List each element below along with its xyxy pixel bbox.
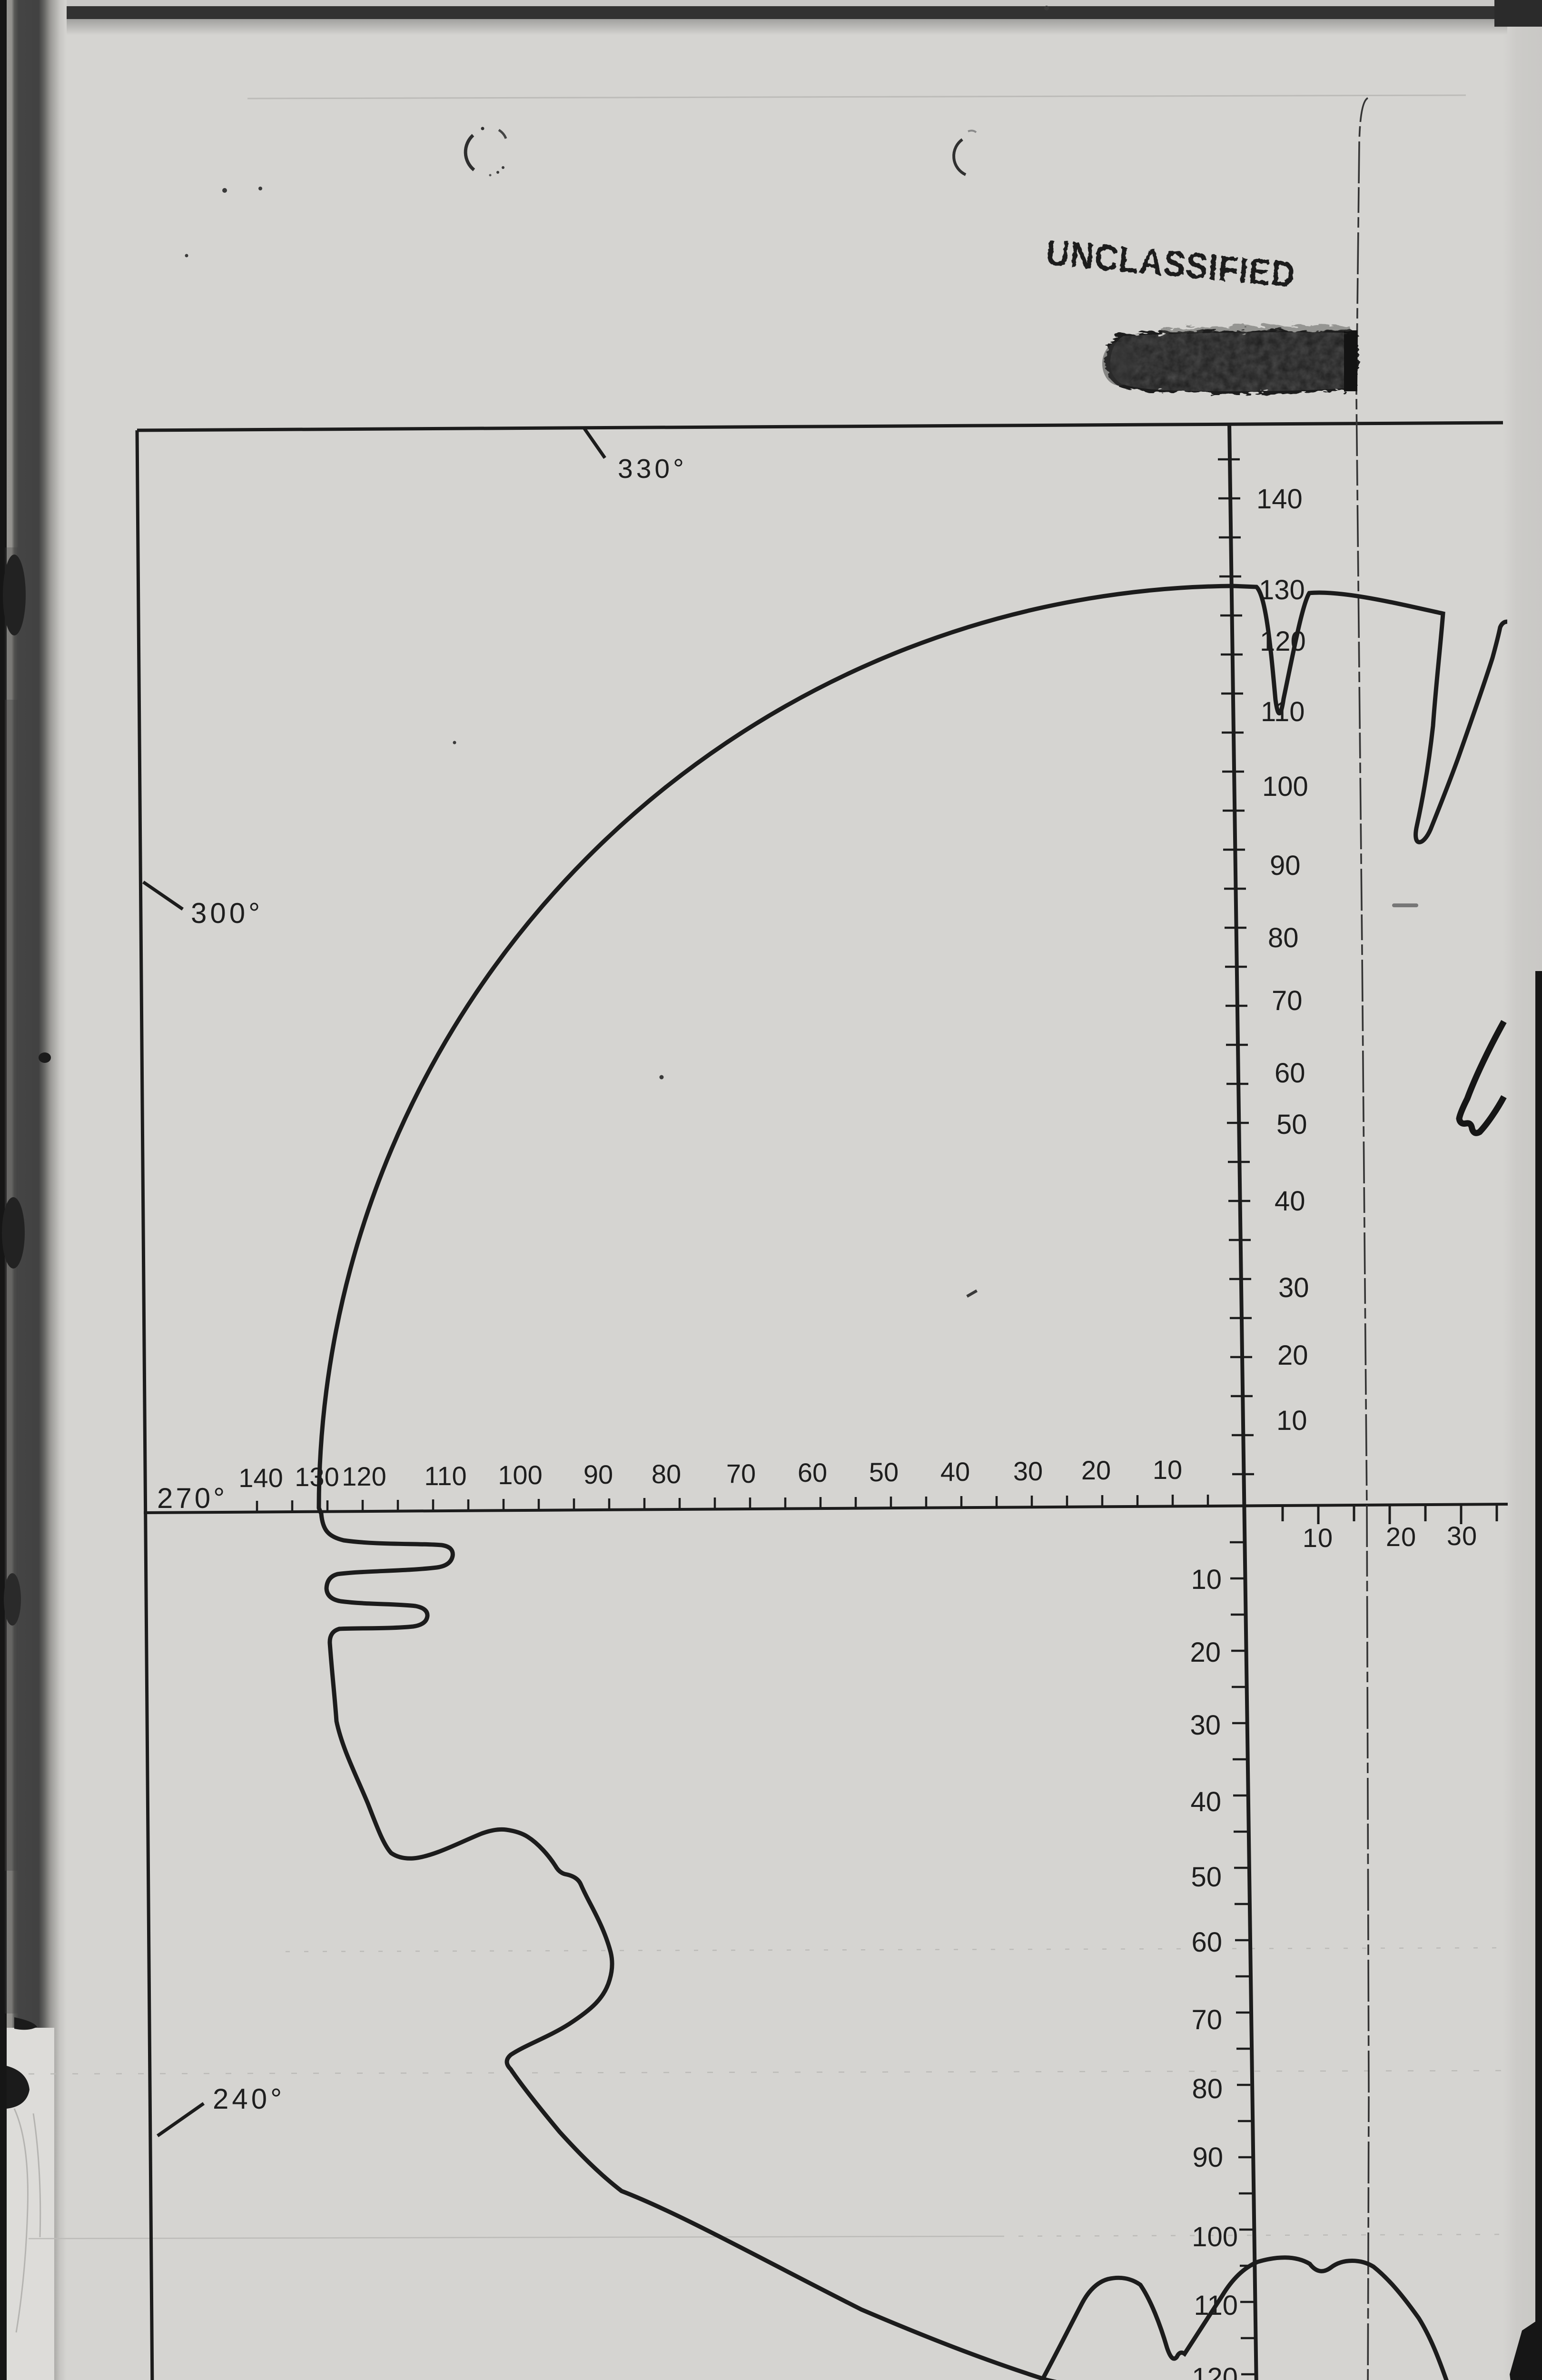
svg-text:80: 80: [1268, 922, 1299, 953]
svg-text:50: 50: [869, 1457, 899, 1487]
svg-text:50: 50: [1191, 1862, 1222, 1893]
svg-text:90: 90: [1270, 850, 1301, 881]
svg-text:120: 120: [342, 1461, 386, 1491]
svg-text:100: 100: [1192, 2221, 1238, 2252]
svg-text:30: 30: [1190, 1710, 1221, 1741]
svg-text:110: 110: [424, 1461, 466, 1491]
svg-text:120: 120: [1192, 2362, 1238, 2380]
svg-text:10: 10: [1153, 1455, 1182, 1485]
svg-text:100: 100: [1262, 771, 1308, 802]
svg-text:330°: 330°: [618, 454, 687, 484]
svg-text:20: 20: [1386, 1522, 1416, 1552]
svg-text:270°: 270°: [157, 1482, 227, 1514]
svg-text:140: 140: [1256, 484, 1303, 515]
svg-text:70: 70: [726, 1458, 756, 1488]
svg-text:30: 30: [1447, 1521, 1477, 1551]
svg-text:80: 80: [1192, 2073, 1223, 2104]
svg-text:100: 100: [498, 1460, 542, 1490]
svg-text:20: 20: [1081, 1455, 1111, 1485]
svg-text:20: 20: [1190, 1637, 1221, 1668]
svg-text:10: 10: [1303, 1523, 1333, 1553]
svg-text:140: 140: [238, 1463, 283, 1493]
svg-text:70: 70: [1272, 985, 1303, 1016]
svg-text:20: 20: [1277, 1340, 1308, 1371]
svg-text:60: 60: [1191, 1927, 1222, 1958]
svg-text:300°: 300°: [191, 897, 263, 929]
svg-text:40: 40: [1275, 1186, 1305, 1217]
svg-text:80: 80: [652, 1459, 681, 1489]
svg-text:30: 30: [1013, 1456, 1043, 1486]
svg-text:90: 90: [583, 1459, 613, 1489]
svg-text:70: 70: [1191, 2004, 1222, 2035]
svg-text:90: 90: [1192, 2142, 1223, 2173]
svg-text:10: 10: [1191, 1564, 1222, 1595]
svg-text:60: 60: [1275, 1058, 1305, 1089]
svg-text:50: 50: [1276, 1109, 1307, 1140]
svg-text:40: 40: [940, 1457, 970, 1487]
svg-text:30: 30: [1278, 1272, 1309, 1303]
svg-text:40: 40: [1190, 1786, 1221, 1817]
svg-text:240°: 240°: [213, 2083, 285, 2115]
svg-text:60: 60: [798, 1458, 827, 1487]
svg-text:130: 130: [1259, 575, 1305, 605]
svg-text:10: 10: [1276, 1405, 1307, 1436]
